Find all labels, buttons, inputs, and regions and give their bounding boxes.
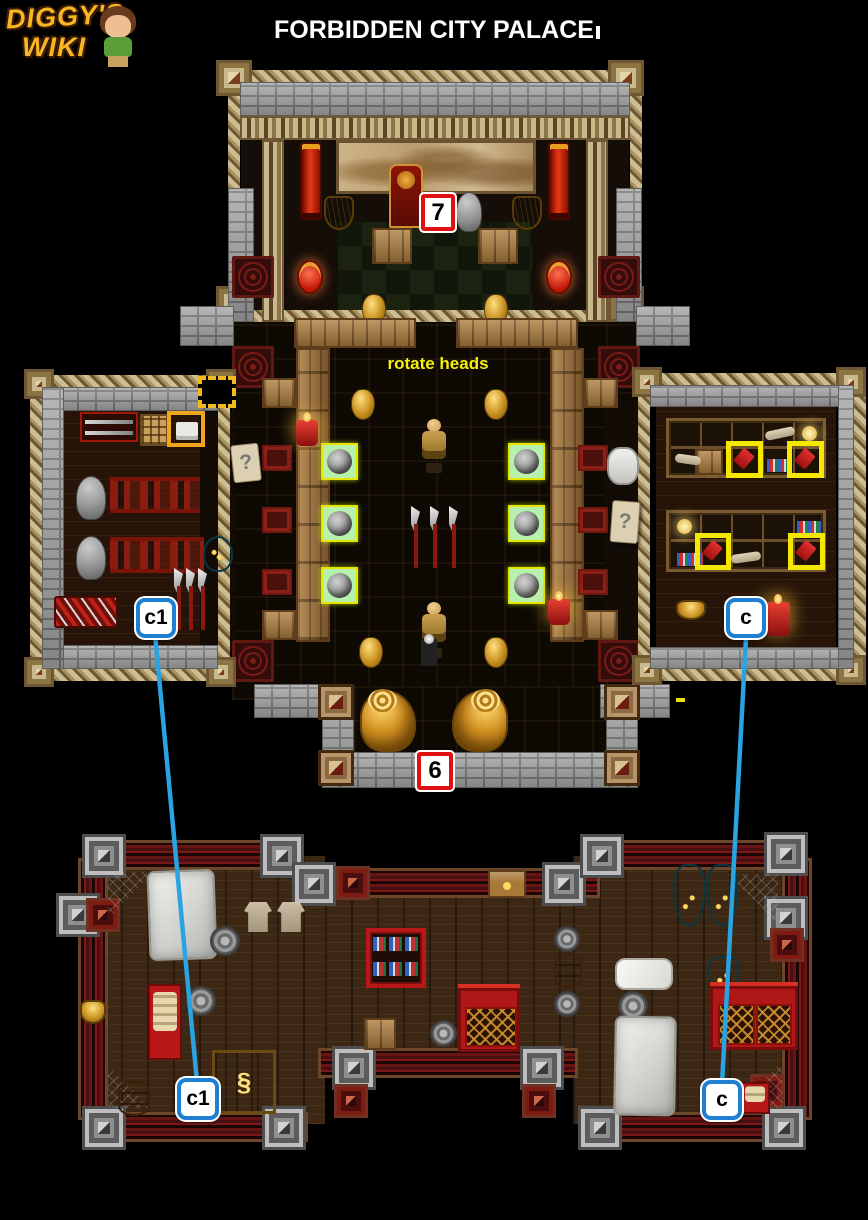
yellow-highlight-box[interactable] <box>788 533 825 570</box>
red-corner-block <box>334 1084 368 1118</box>
red-bookshelf <box>366 928 426 988</box>
gold-bowl <box>80 1000 106 1024</box>
stone-head <box>514 573 539 598</box>
crate-stub <box>584 610 618 640</box>
marker-7[interactable]: 7 <box>421 194 455 231</box>
terracotta-warrior <box>417 419 450 473</box>
right-wing-top-brick <box>650 385 840 407</box>
stone-lion-statue <box>456 192 482 232</box>
entrance-corner-block <box>318 684 354 720</box>
sword-rack <box>80 412 138 442</box>
page-title: FORBIDDEN CITY PALACE <box>0 16 868 45</box>
small-red-shelf <box>740 1082 770 1114</box>
question-scroll: ? <box>610 500 641 544</box>
blue-vase <box>707 864 738 926</box>
gold-basket <box>512 196 542 230</box>
stone-lion-dog <box>76 476 106 520</box>
red-lantern <box>297 260 323 294</box>
white-pillow <box>615 958 673 990</box>
blue-porcelain-pot <box>203 536 233 572</box>
wooden-barrel <box>118 1080 150 1116</box>
stone-disc <box>210 926 240 956</box>
title-cropped-glyph <box>596 26 600 39</box>
red-lantern <box>546 260 572 294</box>
yellow-tick-mark <box>676 698 685 702</box>
stone-corner-block <box>764 832 808 876</box>
marker-c-upper[interactable]: c <box>726 598 766 638</box>
red-wall-shelf <box>578 569 608 595</box>
spear-stand <box>172 568 210 626</box>
left-wing-top-brick <box>42 387 218 411</box>
gold-urn <box>359 637 383 668</box>
gold-urn <box>484 637 508 668</box>
yellow-highlight-box[interactable] <box>787 441 824 478</box>
wooden-barrel <box>554 954 582 988</box>
gold-bowl <box>676 600 706 620</box>
red-candle <box>548 599 570 625</box>
gold-urn <box>484 389 508 420</box>
red-wall-shelf <box>578 445 608 471</box>
crate-row <box>294 318 416 348</box>
step-brick-wall <box>180 306 234 346</box>
entrance-corner-block <box>604 684 640 720</box>
stone-head <box>327 511 352 536</box>
stone-head <box>327 573 352 598</box>
rotatable-head-tile[interactable] <box>508 505 545 542</box>
marker-c-lower[interactable]: c <box>702 1080 742 1120</box>
yellow-highlight-box[interactable] <box>726 441 763 478</box>
hanging-bone-armor <box>277 902 305 932</box>
stone-corner-block <box>580 834 624 878</box>
white-mattress <box>613 1015 677 1116</box>
rotate-heads-note: rotate heads <box>368 354 508 374</box>
throne-ornate-band <box>240 116 630 140</box>
page-canvas: DIGGY'S WIKI FORBIDDEN CITY PALACE <box>0 0 868 1220</box>
wooden-cage <box>140 414 168 446</box>
medallion-block <box>232 640 274 682</box>
entrance-corner-block <box>318 750 354 786</box>
avatar-legs <box>108 56 128 67</box>
yellow-highlight-box[interactable] <box>695 533 731 570</box>
stone-corner-block <box>292 862 336 906</box>
rotatable-head-tile[interactable] <box>321 567 358 604</box>
marker-6[interactable]: 6 <box>417 752 453 790</box>
throne-side-brick <box>228 188 254 322</box>
medallion-block <box>598 256 640 298</box>
stone-corner-block <box>82 834 126 878</box>
entrance-bottom-wall <box>322 752 638 788</box>
red-corner-block <box>336 866 370 900</box>
crate-stub <box>584 378 618 408</box>
stone-disc <box>430 1020 457 1047</box>
wood-panel <box>478 228 518 264</box>
crate-row <box>456 318 578 348</box>
entrance-corner-block <box>604 750 640 786</box>
throne-side-brick <box>616 188 642 322</box>
marker-c1-upper[interactable]: c1 <box>136 598 176 638</box>
white-table <box>176 422 198 440</box>
red-scroll <box>702 540 723 561</box>
red-wall-shelf <box>262 569 292 595</box>
right-wing-side-brick <box>838 385 854 669</box>
emperor-throne <box>389 164 423 228</box>
wood-panel <box>372 228 412 264</box>
gold-lion-statue <box>452 690 508 752</box>
crate-stub <box>262 610 296 640</box>
stone-disc <box>554 926 580 952</box>
stone-head <box>514 511 539 536</box>
stone-lion-dog <box>76 536 106 580</box>
question-scroll: ? <box>230 443 262 484</box>
white-mattress <box>146 869 217 961</box>
red-wall-shelf <box>262 507 292 533</box>
zodiac-tapestry <box>336 140 536 194</box>
gold-basket <box>324 196 354 230</box>
red-candle <box>766 602 790 636</box>
step-brick-wall <box>636 306 690 346</box>
red-pillar <box>300 142 322 220</box>
marker-c1-lower[interactable]: c1 <box>177 1078 219 1120</box>
rotatable-head-tile[interactable] <box>508 443 545 480</box>
crate-stub <box>262 378 296 408</box>
red-pillar <box>548 142 570 220</box>
spear-pile <box>54 596 118 628</box>
white-basin <box>607 447 639 485</box>
wooden-chest <box>488 870 526 898</box>
rotatable-head-tile[interactable] <box>508 567 545 604</box>
left-wing-bottom-brick <box>42 645 218 669</box>
stone-disc <box>554 991 580 1017</box>
wooden-crate <box>364 1018 396 1050</box>
stone-corner-block <box>82 1106 126 1150</box>
scroll-stand <box>148 984 182 1060</box>
right-wing-bottom-brick <box>650 647 840 669</box>
red-scroll <box>795 539 816 560</box>
lamp-stand <box>421 638 437 666</box>
rotatable-head-tile[interactable] <box>321 505 358 542</box>
gold-urn <box>351 389 375 420</box>
stone-head <box>327 449 352 474</box>
stone-disc <box>186 986 216 1016</box>
rotatable-head-tile[interactable] <box>321 443 358 480</box>
golden-folding-screen: § <box>212 1050 276 1114</box>
red-wall-shelf <box>262 445 292 471</box>
orange-highlight-box[interactable] <box>167 411 205 447</box>
red-corner-block <box>522 1084 556 1118</box>
red-corner-block <box>770 928 804 962</box>
red-scroll <box>733 447 754 468</box>
red-candle <box>296 420 318 446</box>
stone-head <box>514 449 539 474</box>
halberd-rack <box>405 506 465 570</box>
throne-top-brick-wall <box>240 82 630 116</box>
medallion-block <box>232 256 274 298</box>
red-cabinet <box>458 988 520 1052</box>
red-fence-row <box>110 477 200 513</box>
entrance-brick-band <box>254 684 324 718</box>
blue-vase <box>674 864 705 926</box>
dashed-highlight-box[interactable] <box>198 376 236 408</box>
red-scroll <box>794 447 815 468</box>
red-cabinet <box>710 986 798 1050</box>
red-wall-shelf <box>578 507 608 533</box>
